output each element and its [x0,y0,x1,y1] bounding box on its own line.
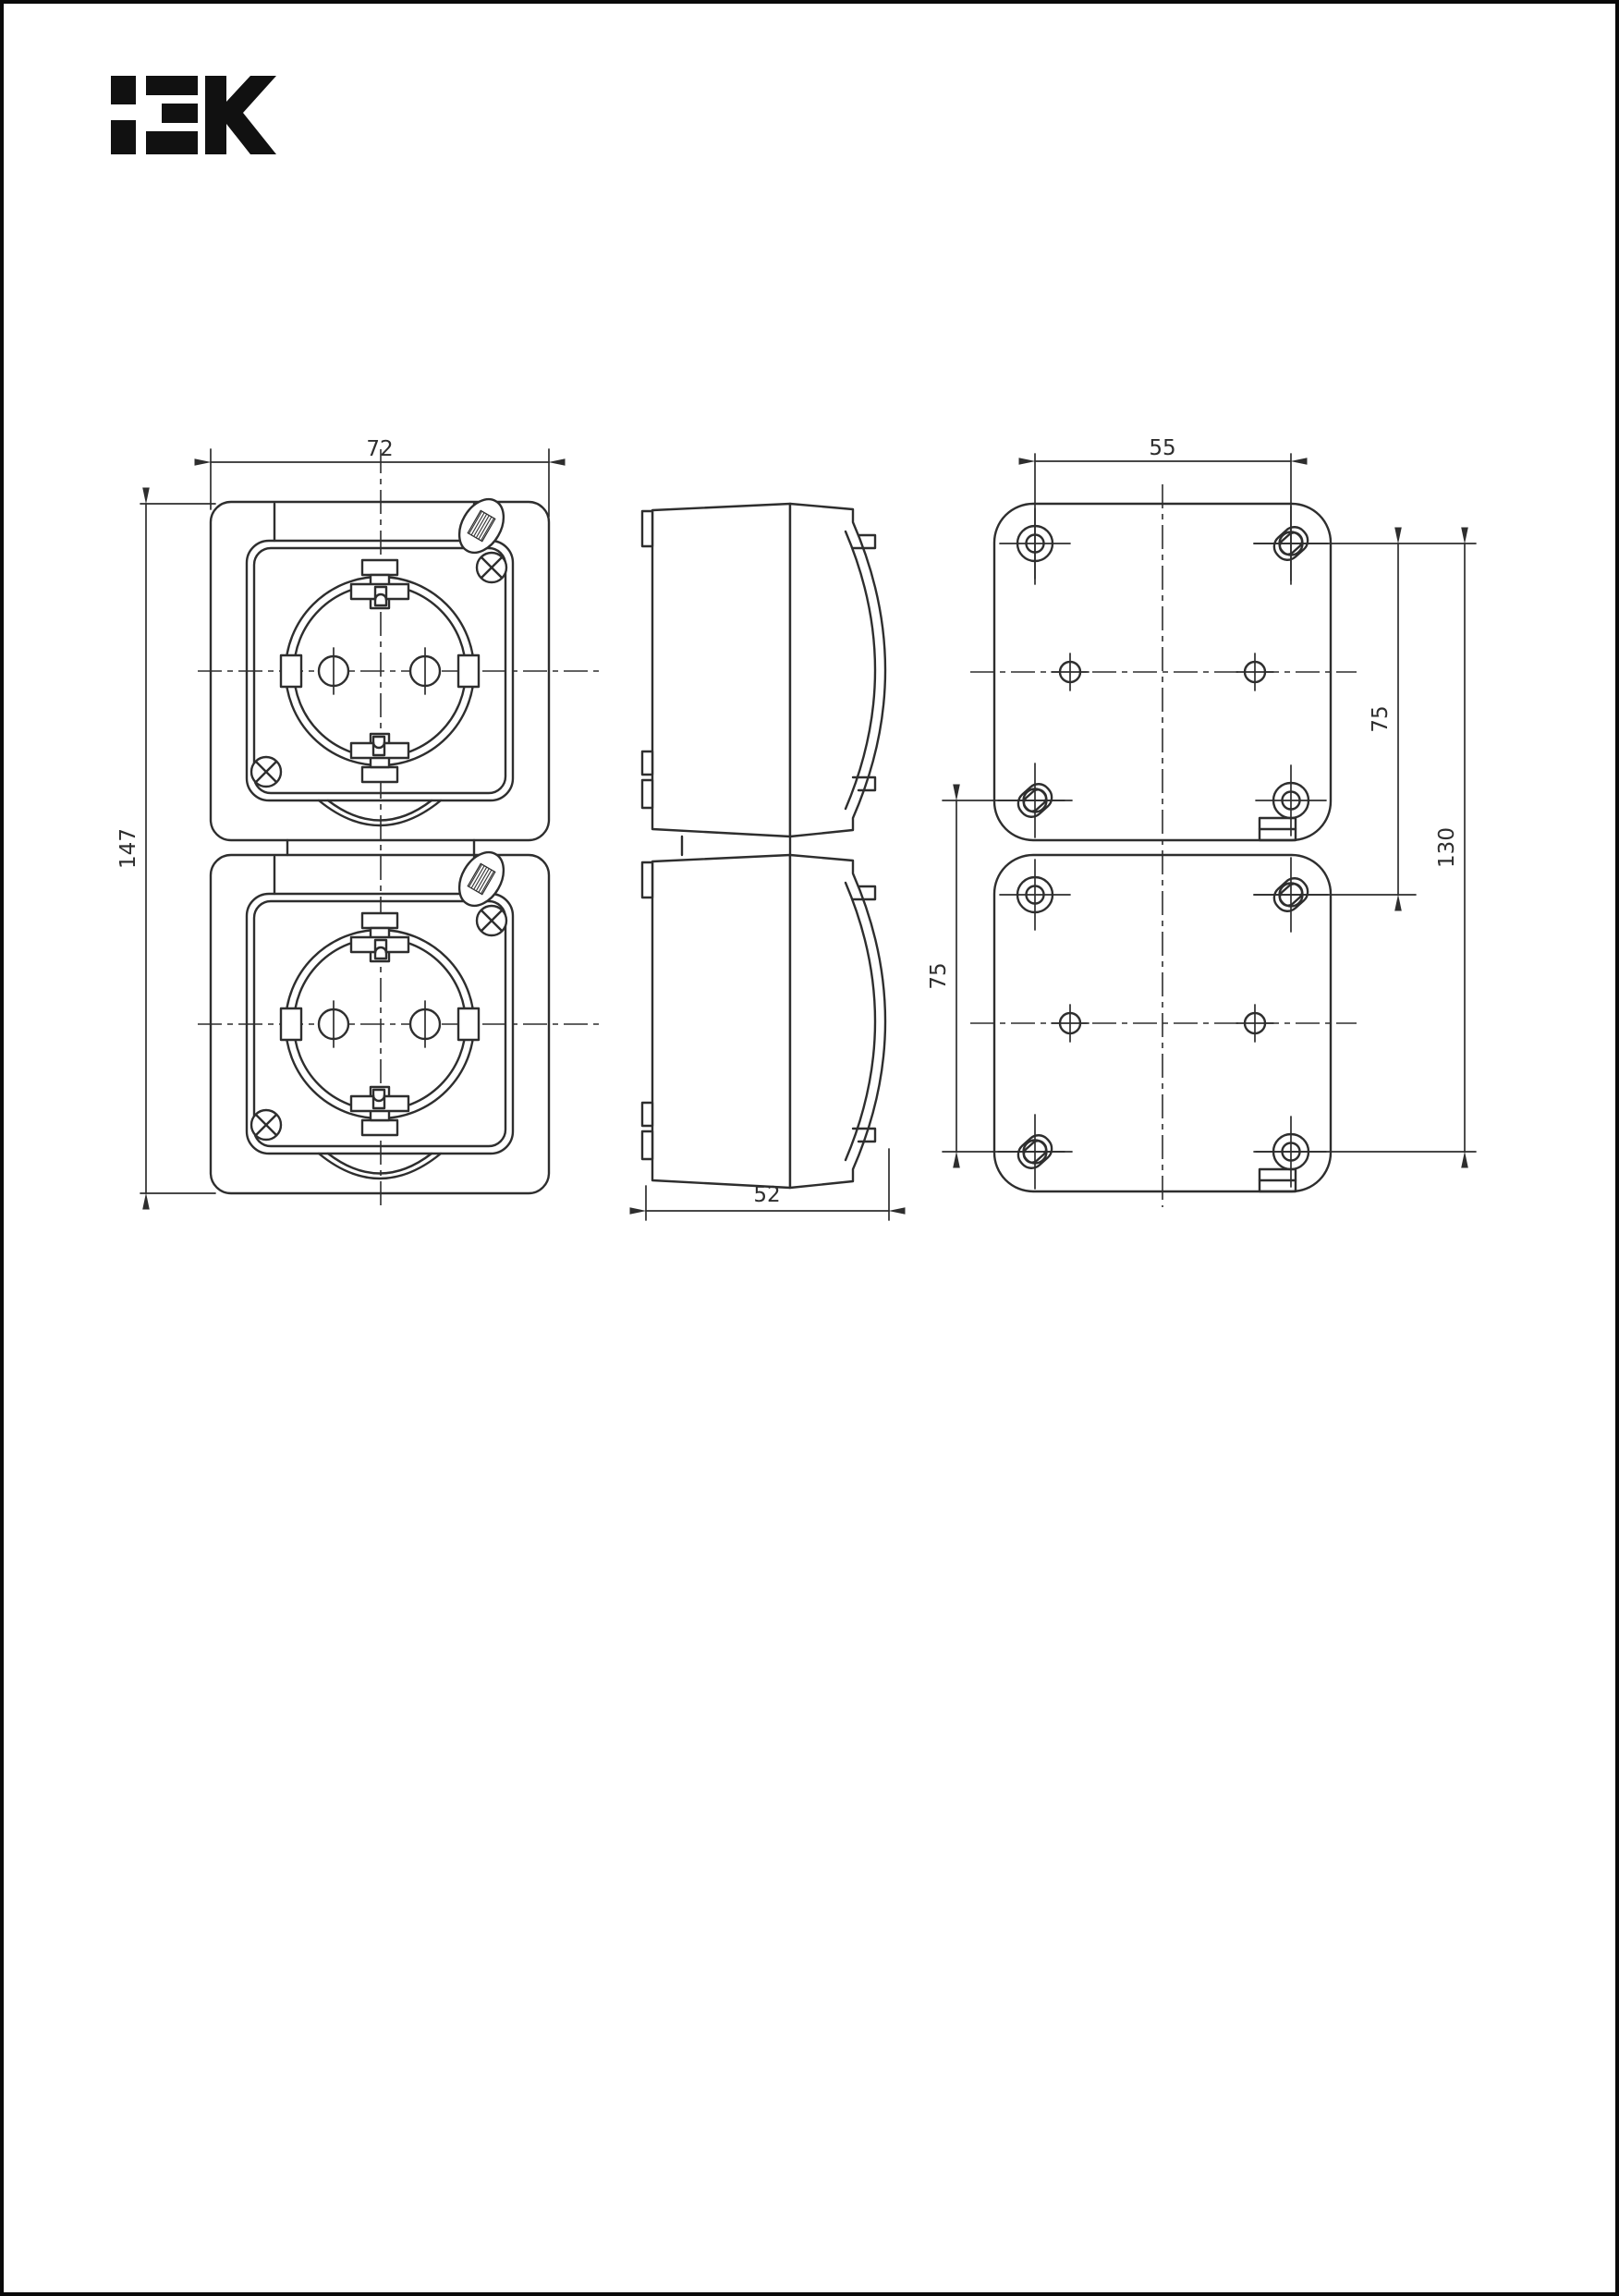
front-view: 72 147 [116,437,601,1209]
dim-back-overall-vertical: 130 [1435,827,1459,868]
dim-back-hole-spacing: 55 [1149,436,1175,460]
side-view: 52 [642,504,889,1220]
dim-back-left-vertical: 75 [927,962,951,989]
dim-front-width: 72 [366,437,393,461]
dim-back-right-vertical: 75 [1369,705,1393,732]
iek-logo [111,76,276,154]
technical-drawing: 72 147 52 [0,0,1619,2296]
back-view: 55 75 75 130 [927,436,1476,1207]
drawing-page: 72 147 52 [0,0,1619,2296]
dim-side-depth: 52 [753,1183,780,1207]
dim-front-height: 147 [116,828,140,869]
